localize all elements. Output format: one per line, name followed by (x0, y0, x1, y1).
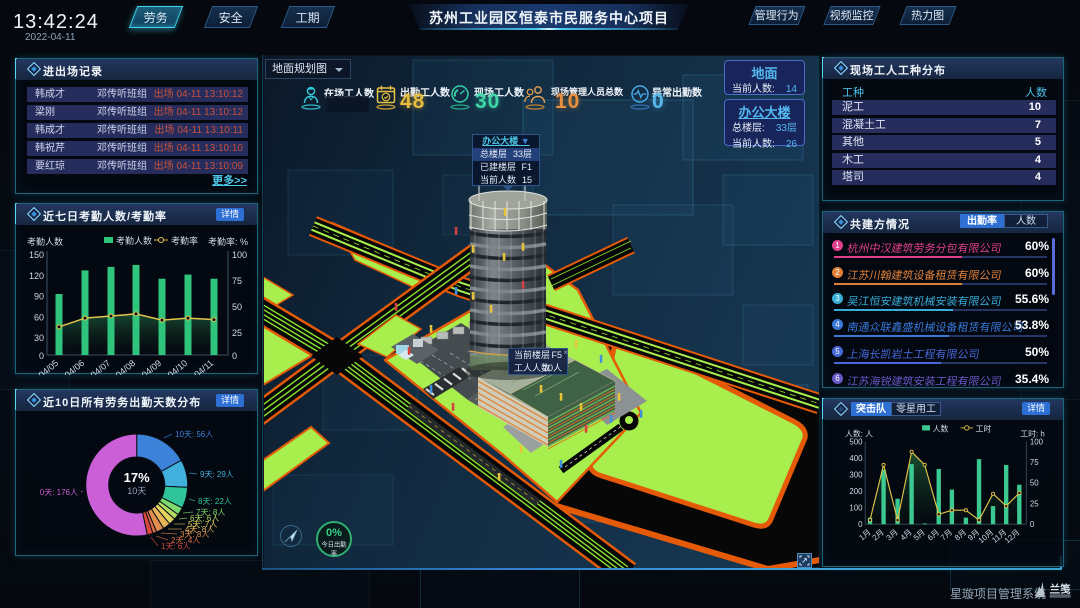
svg-text:考勤人数: 考勤人数 (116, 235, 152, 246)
svg-text:2月: 2月 (871, 528, 886, 543)
svg-text:100: 100 (232, 250, 247, 260)
svg-text:0: 0 (1030, 520, 1035, 529)
svg-text:200: 200 (849, 487, 863, 496)
svg-text:100: 100 (1030, 438, 1044, 447)
svg-text:8天: 22人: 8天: 22人 (198, 497, 232, 506)
svg-text:75: 75 (232, 276, 242, 286)
svg-text:人数: 人数 (933, 423, 949, 433)
svg-text:考勤率: 考勤率 (171, 235, 198, 246)
svg-text:60: 60 (34, 312, 44, 322)
svg-text:5月: 5月 (912, 528, 927, 543)
svg-text:25: 25 (1030, 499, 1039, 508)
svg-text:30: 30 (34, 333, 44, 343)
svg-text:7月: 7月 (939, 528, 954, 543)
svg-text:3月: 3月 (885, 528, 900, 543)
svg-text:04/10: 04/10 (166, 358, 190, 375)
svg-text:工时: 工时 (976, 423, 992, 433)
svg-text:400: 400 (849, 454, 863, 463)
svg-text:25: 25 (232, 328, 242, 338)
svg-text:9天: 29人: 9天: 29人 (200, 470, 234, 479)
svg-text:10天: 56人: 10天: 56人 (175, 430, 213, 439)
svg-text:150: 150 (29, 250, 44, 260)
svg-text:考勤率: %: 考勤率: % (208, 236, 248, 247)
svg-text:100: 100 (849, 503, 863, 512)
svg-text:12月: 12月 (1003, 528, 1022, 546)
svg-text:04/06: 04/06 (63, 358, 87, 375)
svg-text:90: 90 (34, 292, 44, 302)
svg-text:04/07: 04/07 (89, 358, 113, 375)
svg-text:0: 0 (39, 351, 44, 361)
svg-text:1天: 6人: 1天: 6人 (161, 542, 190, 551)
svg-text:兰笺: 兰笺 (1050, 583, 1072, 596)
svg-text:0: 0 (232, 351, 237, 361)
svg-text:考勤人数: 考勤人数 (27, 236, 63, 247)
svg-text:04/08: 04/08 (114, 358, 138, 375)
svg-text:75: 75 (1030, 458, 1039, 467)
svg-text:17%: 17% (124, 470, 150, 485)
svg-text:300: 300 (849, 470, 863, 479)
svg-text:120: 120 (29, 271, 44, 281)
svg-text:500: 500 (849, 438, 863, 447)
svg-text:50: 50 (1030, 479, 1039, 488)
svg-text:04/09: 04/09 (140, 358, 164, 375)
svg-text:0: 0 (858, 520, 863, 529)
svg-text:10天: 10天 (127, 486, 146, 496)
svg-text:0天: 176人: 0天: 176人 (40, 488, 78, 497)
svg-text:50: 50 (232, 302, 242, 312)
svg-text:04/11: 04/11 (192, 358, 215, 375)
